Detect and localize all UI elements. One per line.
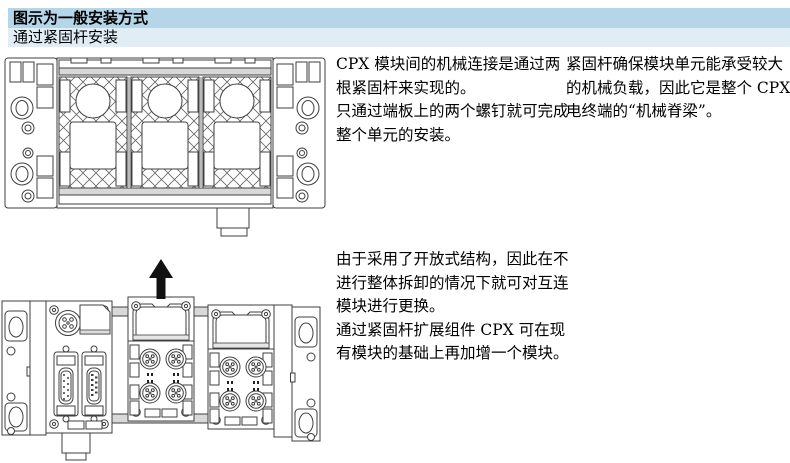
- paragraph-line: CPX 模块间的机械连接是通过两根紧固杆来实现的。: [336, 53, 574, 100]
- right-end-plate: [273, 58, 325, 208]
- io-module-lifted: [128, 297, 194, 421]
- left-end-plate: [5, 58, 57, 208]
- paragraph-line: 只通过端板上的两个螺钉就可完成整个单元的安装。: [336, 100, 574, 147]
- m12-bus-connector: [56, 311, 81, 336]
- up-arrow-icon: [149, 259, 173, 299]
- paragraph-open-structure: 由于采用了开放式结构，因此在不进行整体拆卸的情况下就可对互连模块进行更换。 通过…: [336, 248, 574, 366]
- mounting-foot: [217, 208, 249, 228]
- paragraph-line: 紧固杆确保模块单元能承受较大的机械负载，因此它是整个 CPX 电终端的“机械脊梁…: [566, 53, 790, 124]
- page-title: 图示为一般安装方式: [8, 8, 790, 28]
- module-divider: [128, 77, 130, 188]
- tie-rod-rail-top: [59, 68, 271, 75]
- tie-rod-rail-bottom: [59, 188, 271, 195]
- paragraph-line: 由于采用了开放式结构，因此在不进行整体拆卸的情况下就可对互连模块进行更换。: [336, 248, 574, 319]
- figure-module-exchange-front-view: [0, 257, 330, 463]
- bus-node-module: [46, 301, 112, 460]
- mounting-foot: [62, 433, 90, 453]
- paragraph-line: 通过紧固杆扩展组件 CPX 可在现有模块的基础上再加增一个模块。: [336, 319, 574, 366]
- paragraph-tie-rod-backbone: 紧固杆确保模块单元能承受较大的机械负载，因此它是整个 CPX 电终端的“机械脊梁…: [566, 53, 790, 124]
- paragraph-mechanical-connection: CPX 模块间的机械连接是通过两根紧固杆来实现的。 只通过端板上的两个螺钉就可完…: [336, 53, 574, 147]
- left-end-plate: [2, 301, 46, 435]
- terminal-body: [57, 58, 273, 236]
- module-divider: [200, 77, 202, 188]
- right-end-plate: [274, 305, 320, 441]
- figure-tie-rod-mounting-rear-view: [3, 56, 327, 244]
- io-module-seated: [208, 305, 274, 429]
- page-subtitle: 通过紧固杆安装: [8, 28, 790, 47]
